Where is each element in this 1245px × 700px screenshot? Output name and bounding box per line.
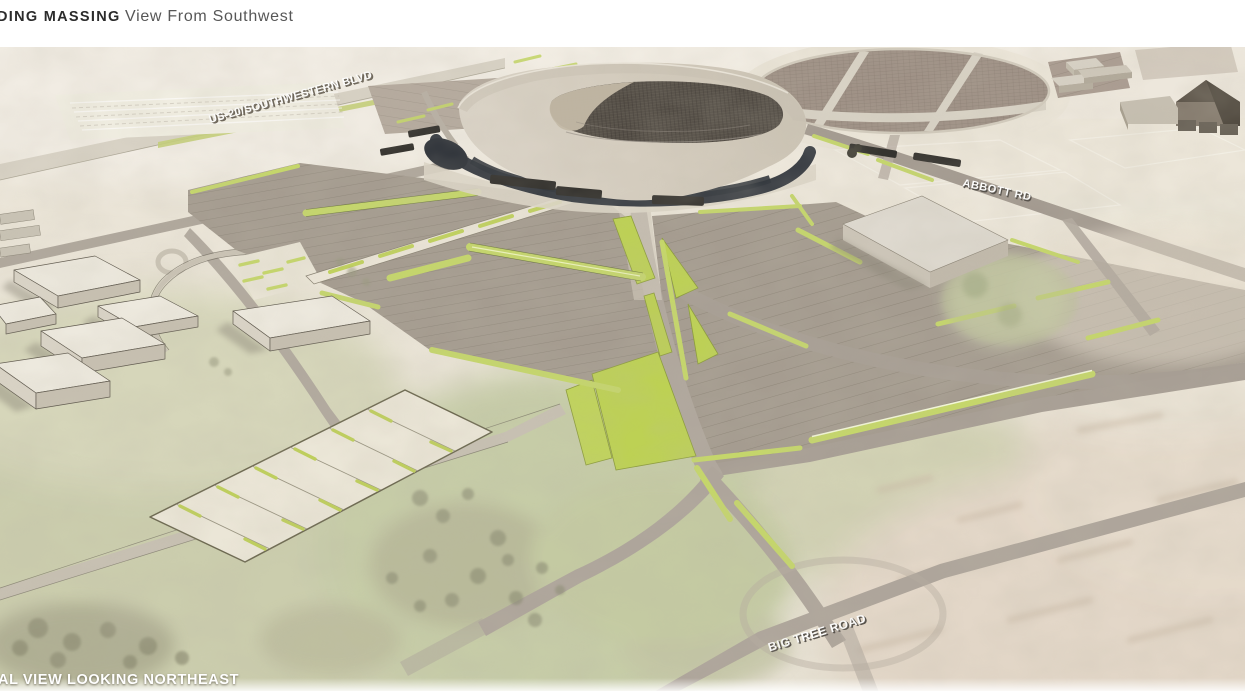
svg-text:AL VIEW LOOKING NORTHEAST: AL VIEW LOOKING NORTHEAST (0, 672, 239, 688)
svg-text:DING MASSING: DING MASSING (0, 9, 121, 25)
svg-text:View From Southwest: View From Southwest (125, 8, 294, 25)
